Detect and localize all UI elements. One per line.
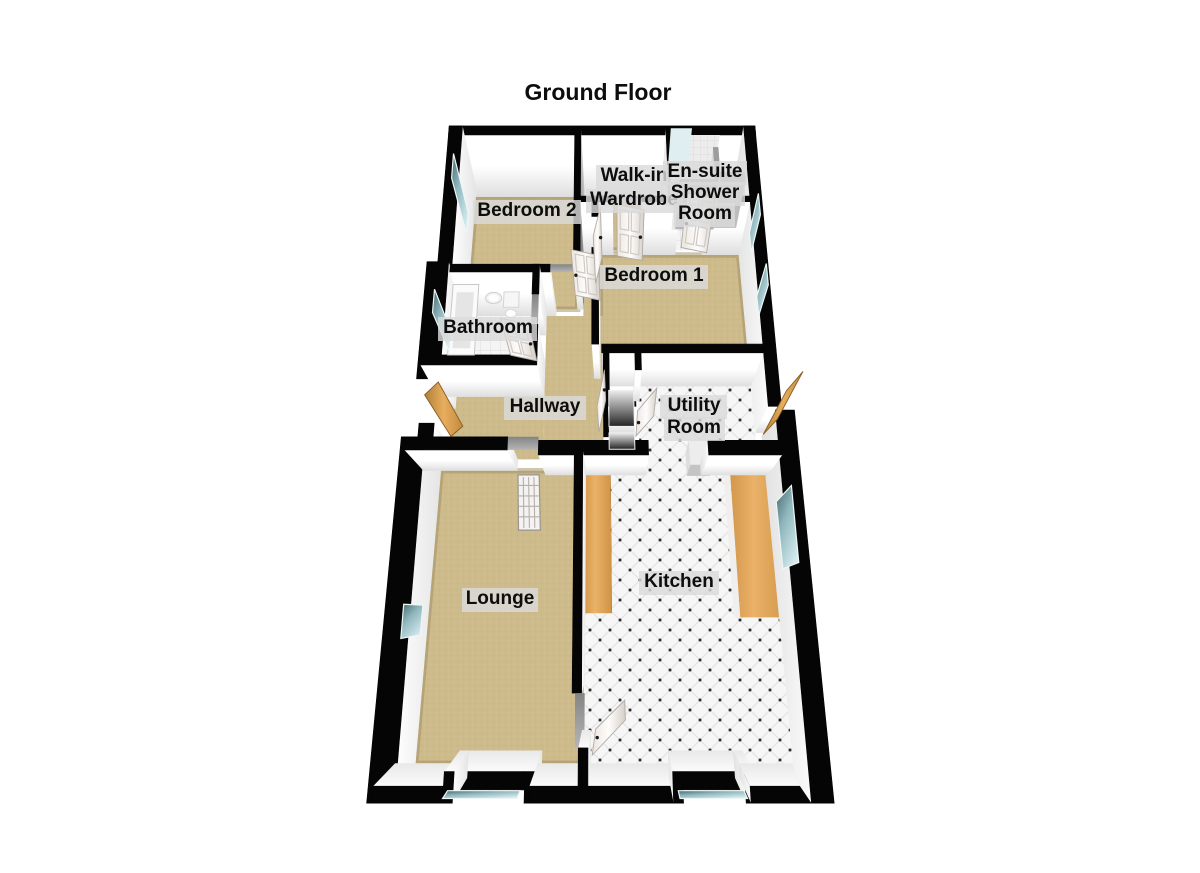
svg-text:Bedroom 2: Bedroom 2 [477,200,576,221]
svg-text:Bathroom: Bathroom [443,317,533,338]
svg-text:Lounge: Lounge [466,588,535,609]
svg-text:Hallway: Hallway [510,396,581,417]
svg-text:Ground Floor: Ground Floor [525,79,672,105]
svg-text:Room: Room [667,417,721,438]
svg-text:Room: Room [678,203,732,224]
svg-text:Wardrobe: Wardrobe [590,189,678,210]
svg-text:Walk-in: Walk-in [601,165,668,186]
svg-text:Bedroom 1: Bedroom 1 [604,265,704,286]
svg-text:En-suite: En-suite [668,161,743,182]
svg-text:Utility: Utility [668,395,721,416]
svg-text:Kitchen: Kitchen [644,571,714,592]
svg-text:Shower: Shower [671,182,740,203]
